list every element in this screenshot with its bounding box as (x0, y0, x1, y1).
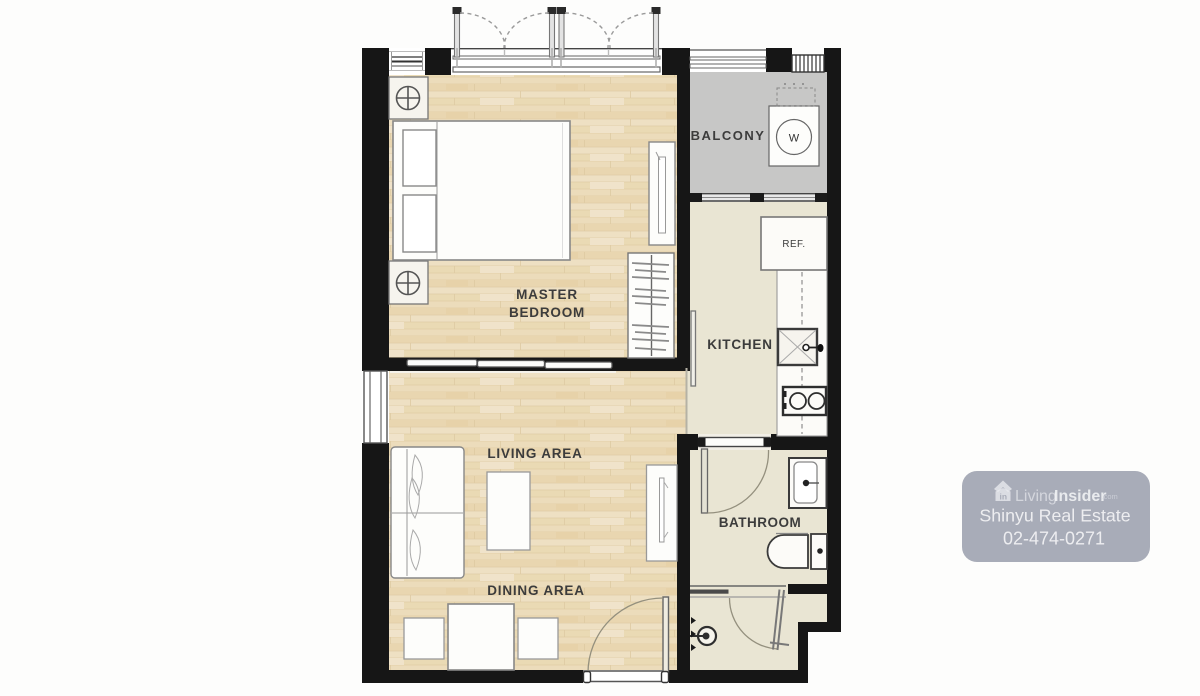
svg-text:Living: Living (1015, 488, 1057, 505)
svg-text:02-474-0271: 02-474-0271 (1003, 529, 1105, 549)
svg-text:Insider: Insider (1054, 488, 1106, 505)
svg-text:DINING AREA: DINING AREA (487, 583, 585, 598)
svg-text:BATHROOM: BATHROOM (719, 515, 802, 530)
svg-text:in: in (1000, 492, 1008, 502)
svg-text:REF.: REF. (782, 239, 805, 250)
svg-text:.com: .com (1102, 492, 1118, 501)
svg-text:BEDROOM: BEDROOM (509, 305, 585, 320)
svg-text:W: W (789, 133, 800, 145)
svg-text:MASTER: MASTER (516, 287, 578, 302)
svg-text:LIVING AREA: LIVING AREA (487, 446, 582, 461)
svg-text:KITCHEN: KITCHEN (707, 337, 773, 352)
svg-text:Shinyu Real Estate: Shinyu Real Estate (979, 506, 1130, 526)
svg-text:BALCONY: BALCONY (691, 128, 766, 143)
